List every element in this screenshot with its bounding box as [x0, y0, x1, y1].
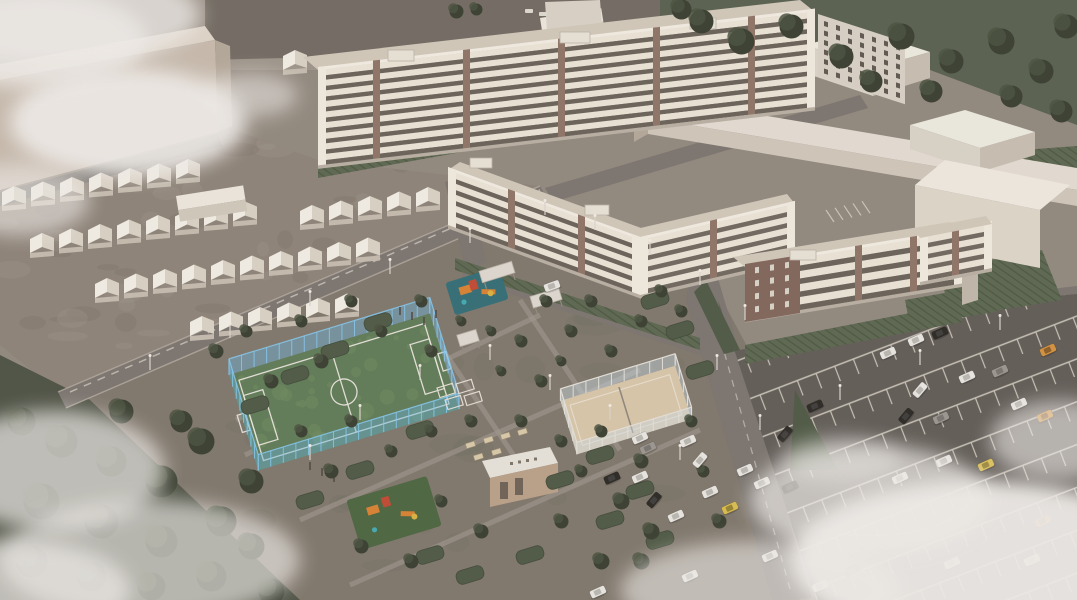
- fog-clouds-layer: [0, 0, 1077, 600]
- scene-canvas: [0, 0, 1077, 600]
- sepia-veil: [0, 0, 1077, 600]
- aerial-render-image: [0, 0, 1077, 600]
